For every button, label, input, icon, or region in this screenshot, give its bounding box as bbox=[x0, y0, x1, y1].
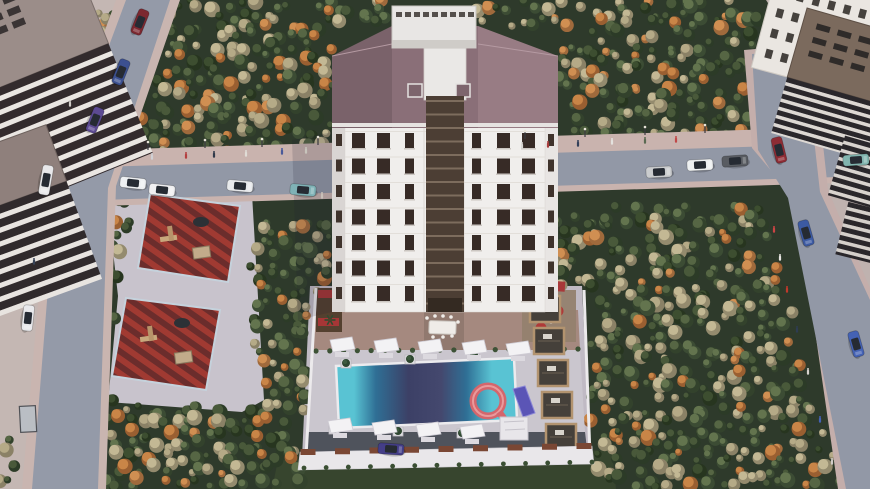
pedestrian bbox=[33, 258, 35, 265]
rooftop-ac-units bbox=[396, 12, 474, 17]
pedestrian bbox=[831, 458, 833, 465]
cypress-tree bbox=[341, 359, 351, 368]
bus-shelter bbox=[19, 406, 36, 433]
pedestrian bbox=[321, 192, 323, 199]
wooden-cabana bbox=[538, 360, 568, 386]
pedestrian bbox=[796, 326, 798, 333]
dormer bbox=[456, 84, 470, 97]
wooden-cabana bbox=[534, 328, 564, 354]
pedestrian bbox=[807, 368, 809, 375]
pedestrian bbox=[779, 254, 781, 261]
pedestrian bbox=[151, 153, 153, 160]
wooden-cabana bbox=[542, 392, 572, 418]
pedestrian bbox=[577, 140, 579, 147]
cypress-tree bbox=[405, 355, 415, 364]
pedestrian bbox=[281, 148, 283, 155]
slide-platform bbox=[500, 417, 528, 440]
pedestrian bbox=[819, 416, 821, 423]
tower-shadow bbox=[292, 132, 332, 320]
pedestrian bbox=[69, 100, 71, 107]
pedestrian bbox=[786, 286, 788, 293]
pedestrian bbox=[521, 142, 523, 149]
aerial-render-stage bbox=[0, 0, 870, 489]
pedestrian bbox=[675, 136, 677, 143]
sandbox bbox=[192, 246, 210, 259]
dormer bbox=[408, 84, 422, 97]
pedestrian bbox=[305, 147, 307, 154]
pedestrian bbox=[773, 226, 775, 233]
tire-mound bbox=[174, 318, 190, 328]
tire-mound bbox=[193, 217, 209, 227]
pedestrian bbox=[185, 152, 187, 159]
rooftop-deck-edge bbox=[392, 40, 476, 48]
playground-court-south bbox=[112, 298, 220, 390]
dining-table bbox=[429, 321, 456, 335]
pedestrian bbox=[213, 151, 215, 158]
pedestrian bbox=[644, 137, 646, 144]
entrance-canopy bbox=[428, 298, 462, 312]
playground-court-north bbox=[138, 194, 240, 282]
pedestrian bbox=[245, 150, 247, 157]
pedestrian bbox=[611, 138, 613, 145]
pedestrian bbox=[547, 141, 549, 148]
aerial-render bbox=[0, 0, 870, 489]
sandbox bbox=[174, 351, 192, 364]
